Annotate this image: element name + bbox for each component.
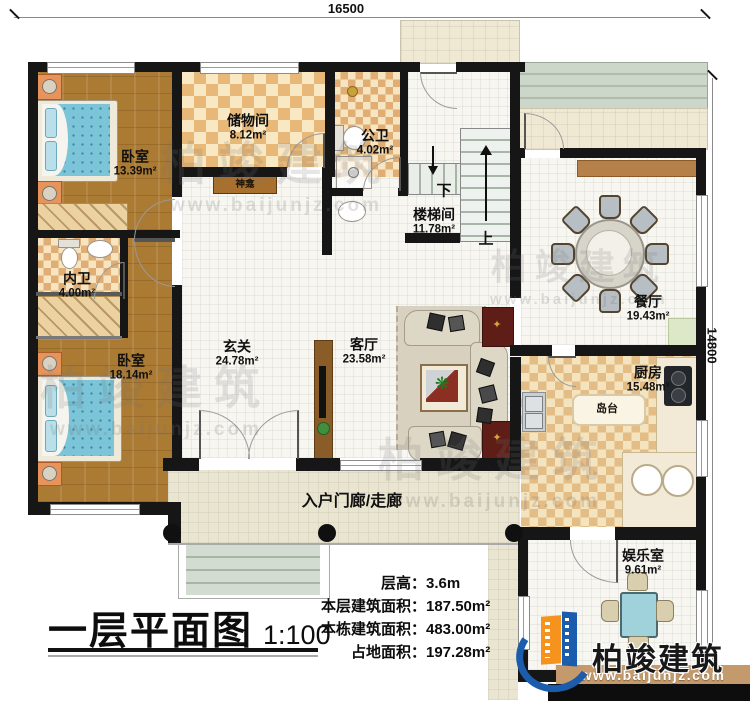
brand-logo-windows xyxy=(565,618,569,660)
wall xyxy=(420,458,521,471)
wall-thin xyxy=(36,336,122,339)
sofa-cushion xyxy=(427,313,446,332)
brand-bottom-bar xyxy=(548,684,750,701)
dining-chair xyxy=(551,243,575,265)
room-label-kitchen: 厨房 15.48m² xyxy=(627,366,670,395)
room-area: 15.48m² xyxy=(627,381,670,394)
side-walkway-floor xyxy=(488,543,518,700)
wardrobe xyxy=(36,296,122,340)
round-sink xyxy=(631,464,663,496)
room-label-storage: 储物间 8.12m² xyxy=(227,114,269,143)
stair-down-arrow-line xyxy=(432,146,434,166)
stat-row: 层高： 3.6m xyxy=(286,572,490,595)
window xyxy=(696,420,708,477)
room-area: 19.43m² xyxy=(627,310,670,323)
stat-value: 187.50m² xyxy=(426,598,490,615)
room-name: 卧室 xyxy=(110,354,153,370)
wall xyxy=(28,62,38,515)
vanity-basin xyxy=(338,201,366,222)
room-area: 18.14m² xyxy=(110,369,153,382)
bed-pillow xyxy=(45,108,57,138)
room-area: 24.78m² xyxy=(216,355,259,368)
dining-table-top xyxy=(586,230,632,276)
room-label-bedroom-2: 卧室 18.14m² xyxy=(110,354,153,383)
brand-name: 柏竣建筑 xyxy=(592,634,724,679)
stair-up-arrow-line xyxy=(485,155,487,221)
dining-chair xyxy=(645,243,669,265)
room-name: 厨房 xyxy=(627,366,670,382)
brand-logo-windows xyxy=(545,622,550,658)
room-area: 11.78m² xyxy=(413,223,455,236)
window xyxy=(47,62,135,74)
room-area: 13.39m² xyxy=(114,165,157,178)
wall xyxy=(332,188,363,196)
porch-edge-line xyxy=(168,543,520,545)
wall xyxy=(518,527,570,540)
plant-icon: ❋ xyxy=(432,374,452,394)
dimension-line-top xyxy=(14,17,706,18)
sofa-cushion xyxy=(429,431,446,448)
dimension-right-value: 14800 xyxy=(705,318,720,374)
room-label-stair-hall: 楼梯间 11.78m² xyxy=(413,208,455,237)
deck-floor xyxy=(518,62,708,110)
title-underline-bold xyxy=(48,648,318,652)
window-seat-pad xyxy=(668,318,698,346)
wall xyxy=(400,62,408,196)
porch-label: 入户门廊/走廊 xyxy=(302,487,402,511)
wall xyxy=(172,167,287,177)
bed-pillow xyxy=(45,385,57,417)
room-name: 楼梯间 xyxy=(413,208,455,224)
bed-pillow xyxy=(45,141,57,171)
mahjong-table xyxy=(620,592,658,638)
room-name: 餐厅 xyxy=(627,295,670,311)
stat-value: 197.28m² xyxy=(426,644,490,661)
room-area: 23.58m² xyxy=(343,353,386,366)
bed-pillow xyxy=(45,420,57,452)
floor-plan-canvas: ❋ ✦ ✦ xyxy=(0,0,750,701)
nightstand-lamp xyxy=(42,356,57,371)
building-stats: 层高： 3.6m 本层建筑面积： 187.50m² 本栋建筑面积： 483.00… xyxy=(286,572,490,664)
room-name: 客厅 xyxy=(343,338,386,354)
window xyxy=(50,504,140,515)
room-area: 4.02m² xyxy=(357,144,393,157)
sofa-cushion xyxy=(448,315,465,332)
sofa-cushion xyxy=(476,407,493,424)
stat-label: 层高： xyxy=(286,572,426,593)
room-label-dining: 餐厅 19.43m² xyxy=(627,295,670,324)
dining-chair xyxy=(599,289,621,313)
stat-row: 本层建筑面积： 187.50m² xyxy=(286,595,490,618)
shower-head xyxy=(348,167,359,178)
room-label-recreation: 娱乐室 9.61m² xyxy=(622,549,664,578)
rec-chair xyxy=(656,600,674,622)
wall xyxy=(325,62,335,167)
rec-chair xyxy=(601,600,619,622)
nightstand-lamp xyxy=(42,186,57,201)
room-area: 4.00m² xyxy=(59,287,95,300)
wash-basin xyxy=(87,240,113,258)
porch-column xyxy=(505,524,523,542)
wall xyxy=(510,345,552,356)
porch-column xyxy=(163,524,181,542)
stat-label: 本栋建筑面积： xyxy=(286,618,426,639)
plant-small xyxy=(317,422,330,435)
towel-knob xyxy=(347,86,358,97)
wall xyxy=(510,158,521,298)
wardrobe-bench xyxy=(36,203,128,231)
stat-label: 本层建筑面积： xyxy=(286,595,426,616)
plan-title: 一层平面图 xyxy=(48,610,253,653)
room-name: 内卫 xyxy=(59,272,95,288)
wall xyxy=(510,357,521,458)
stat-row: 占地面积： 197.28m² xyxy=(286,641,490,664)
stat-value: 3.6m xyxy=(426,575,460,592)
room-label-living: 客厅 23.58m² xyxy=(343,338,386,367)
wall xyxy=(322,167,332,255)
stair-down-arrow-head xyxy=(428,166,438,175)
room-name: 玄关 xyxy=(216,340,259,356)
wall xyxy=(510,62,520,158)
wall xyxy=(163,458,199,471)
kitchen-sink-basin xyxy=(525,413,543,429)
round-sink xyxy=(662,465,694,497)
stairs-down-label: 下 xyxy=(436,180,451,201)
stairs-up-label: 上 xyxy=(478,228,493,249)
room-name: 储物间 xyxy=(227,114,269,130)
wall xyxy=(575,345,706,356)
porch-column xyxy=(318,524,336,542)
sideboard xyxy=(577,160,698,177)
room-area: 9.61m² xyxy=(622,564,664,577)
dining-chair xyxy=(599,195,621,219)
dimension-top-value: 16500 xyxy=(306,1,386,16)
dimension-line-right xyxy=(712,78,713,676)
room-label-ensuite: 内卫 4.00m² xyxy=(59,272,95,301)
nightstand-lamp xyxy=(42,466,57,481)
room-name: 公卫 xyxy=(357,129,393,145)
room-area: 8.12m² xyxy=(227,129,269,142)
stat-row: 本栋建筑面积： 483.00m² xyxy=(286,618,490,641)
stat-label: 占地面积： xyxy=(286,641,426,662)
room-name: 卧室 xyxy=(114,150,157,166)
stat-value: 483.00m² xyxy=(426,621,490,638)
room-label-bedroom-1: 卧室 13.39m² xyxy=(114,150,157,179)
burner xyxy=(671,371,686,386)
burner xyxy=(671,388,686,403)
brand-logo-building-orange xyxy=(541,615,561,664)
window xyxy=(200,62,299,74)
room-label-foyer: 玄关 24.78m² xyxy=(216,340,259,369)
shrine-label: 神龛 xyxy=(235,176,254,190)
window xyxy=(696,195,708,287)
wall xyxy=(615,527,706,540)
kitchen-sink-basin xyxy=(525,396,543,412)
accent-cabinet-emblem: ✦ xyxy=(490,431,504,445)
accent-cabinet-emblem: ✦ xyxy=(490,318,504,332)
window xyxy=(340,460,422,471)
toilet-bowl xyxy=(61,247,78,269)
title-underline-thin xyxy=(48,655,318,657)
wall xyxy=(296,458,340,471)
room-name: 娱乐室 xyxy=(622,549,664,565)
wall xyxy=(560,148,706,158)
nightstand-lamp xyxy=(42,79,57,94)
stair-up-arrow-head xyxy=(480,145,492,155)
patio-top-floor xyxy=(400,20,520,64)
room-label-public-bath: 公卫 4.02m² xyxy=(357,129,393,158)
island-label: 岛台 xyxy=(596,400,618,416)
wall xyxy=(172,285,182,460)
tv-screen xyxy=(319,366,326,418)
